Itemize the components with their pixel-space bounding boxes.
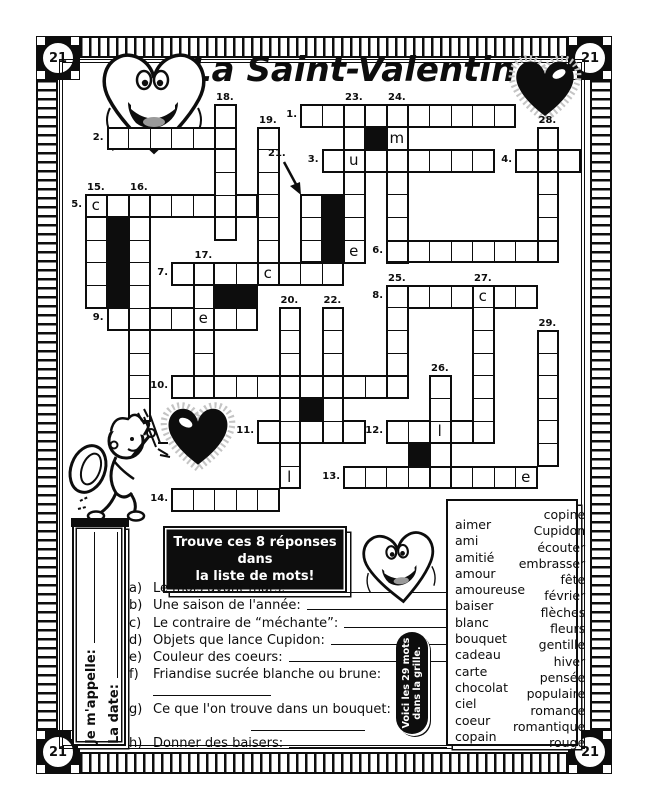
grid-cell[interactable] — [107, 127, 130, 151]
grid-black-cell — [107, 217, 130, 241]
grid-cell[interactable] — [408, 466, 431, 490]
grid-cell[interactable] — [279, 420, 302, 444]
grid-cell[interactable] — [214, 217, 237, 241]
clue-text: Couleur des coeurs: — [153, 650, 285, 665]
grid-cell[interactable] — [214, 149, 237, 173]
grid-number: 23. — [345, 92, 367, 103]
name-input-line[interactable] — [94, 532, 95, 643]
grid-cell[interactable] — [300, 217, 323, 241]
grid-number: 16. — [130, 182, 152, 193]
grid-cell[interactable] — [128, 307, 151, 331]
answer-line[interactable] — [344, 627, 447, 628]
grid-cell[interactable] — [343, 104, 366, 128]
grid-cell[interactable] — [558, 149, 581, 173]
grid-cell[interactable] — [365, 149, 388, 173]
grid-cell[interactable] — [128, 285, 151, 309]
grid-cell[interactable] — [236, 375, 259, 399]
clue-text: Le mois avant mars: — [153, 581, 288, 596]
worksheet-page: 21 21 21 21 La Saint-Valentin 1.2.3.4.5.… — [0, 0, 648, 810]
grid-cell[interactable] — [193, 285, 216, 309]
name-label: Je m'appelle: — [84, 649, 99, 744]
grid-cell[interactable] — [107, 194, 130, 218]
lace-heart-icon — [506, 52, 584, 124]
grid-cell[interactable] — [214, 127, 237, 151]
word-list-item: bouquet — [455, 631, 513, 647]
grid-cell[interactable] — [300, 240, 323, 264]
grid-cell[interactable] — [322, 307, 345, 331]
grid-number: 2. — [79, 132, 104, 143]
grid-cell[interactable] — [214, 262, 237, 286]
grid-cell[interactable] — [515, 240, 538, 264]
grid-cell[interactable] — [279, 398, 302, 422]
badge-line1: Voici les 29 mots — [401, 638, 412, 729]
grid-cell[interactable] — [472, 375, 495, 399]
grid-cell[interactable] — [128, 330, 151, 354]
answer-line[interactable] — [251, 729, 365, 731]
grid-number: 17. — [195, 250, 217, 261]
grid-cell[interactable] — [257, 420, 280, 444]
grid-cell[interactable] — [429, 149, 452, 173]
grid-cell[interactable] — [85, 240, 108, 264]
grid-cell[interactable] — [537, 127, 560, 151]
grid-cell[interactable] — [128, 353, 151, 377]
grid-letter: m — [386, 127, 408, 150]
grid-cell[interactable] — [322, 104, 345, 128]
grid-cell[interactable] — [322, 375, 345, 399]
grid-number: 27. — [474, 273, 496, 284]
clue-text: Le contraire de “méchante”: — [153, 616, 340, 631]
grid-cell[interactable] — [386, 285, 409, 309]
grid-cell[interactable] — [322, 420, 345, 444]
grid-cell[interactable] — [537, 420, 560, 444]
grid-black-cell — [365, 127, 388, 151]
grid-cell[interactable] — [171, 262, 194, 286]
word-list-item: baiser — [455, 598, 513, 614]
grid-cell[interactable] — [451, 149, 474, 173]
grid-cell[interactable] — [214, 172, 237, 196]
grid-cell[interactable] — [537, 217, 560, 241]
word-list-box: aimeramiamitiéamouramoureusebaiserblancb… — [446, 499, 578, 746]
grid-cell[interactable] — [408, 149, 431, 173]
grid-cell[interactable] — [429, 466, 452, 490]
grid-cell[interactable] — [386, 375, 409, 399]
grid-cell[interactable] — [537, 375, 560, 399]
grid-cell[interactable] — [451, 285, 474, 309]
grid-cell[interactable] — [128, 375, 151, 399]
grid-cell[interactable] — [537, 353, 560, 377]
word-list-item: blanc — [455, 615, 513, 631]
grid-cell[interactable] — [429, 240, 452, 264]
grid-number: 26. — [431, 363, 453, 374]
date-label: La date: — [107, 684, 122, 744]
grid-cell[interactable] — [107, 307, 130, 331]
grid-cell[interactable] — [386, 194, 409, 218]
grid-cell[interactable] — [343, 375, 366, 399]
grid-cell[interactable] — [451, 420, 474, 444]
grid-cell[interactable] — [472, 104, 495, 128]
grid-number: 21. — [268, 148, 286, 159]
grid-cell[interactable] — [257, 217, 280, 241]
grid-cell[interactable] — [515, 149, 538, 173]
word-list-item: ami — [455, 533, 513, 549]
grid-cell[interactable] — [257, 240, 280, 264]
word-list-item: gentille — [513, 637, 585, 653]
clue-letter: h) — [129, 736, 153, 751]
word-list-item: romance — [513, 703, 585, 719]
grid-number: 28. — [539, 115, 561, 126]
grid-cell[interactable] — [257, 375, 280, 399]
grid-cell[interactable] — [214, 307, 237, 331]
grid-cell[interactable] — [343, 172, 366, 196]
grid-cell[interactable] — [386, 240, 409, 264]
grid-black-cell — [214, 285, 237, 309]
word-list-item: flèches — [513, 605, 585, 621]
grid-cell[interactable] — [236, 307, 259, 331]
grid-cell[interactable] — [214, 104, 237, 128]
grid-cell[interactable] — [128, 217, 151, 241]
grid-cell[interactable] — [494, 285, 517, 309]
grid-number: 18. — [216, 92, 238, 103]
clue-letter: e) — [129, 650, 153, 665]
grid-number: 20. — [281, 295, 303, 306]
grid-black-cell — [107, 240, 130, 264]
grid-cell[interactable] — [343, 194, 366, 218]
answer-line[interactable] — [331, 644, 447, 645]
grid-cell[interactable] — [257, 488, 280, 512]
grid-cell[interactable] — [472, 307, 495, 331]
clue-text: Objets que lance Cupidon: — [153, 633, 327, 648]
grid-cell[interactable] — [214, 194, 237, 218]
grid-cell[interactable] — [300, 104, 323, 128]
word-list-item: février — [513, 588, 585, 604]
clue-letter: g) — [129, 702, 153, 717]
grid-cell[interactable] — [343, 466, 366, 490]
clue-letter: c) — [129, 616, 153, 631]
word-list-item: pensée — [513, 670, 585, 686]
word-list-left-column: aimeramiamitiéamouramoureusebaiserblancb… — [455, 505, 513, 740]
word-list-item: romantique — [513, 719, 585, 735]
grid-cell[interactable] — [322, 398, 345, 422]
smiley-heart-icon — [352, 524, 448, 615]
grid-cell[interactable] — [322, 353, 345, 377]
grid-cell[interactable] — [128, 262, 151, 286]
page-title: La Saint-Valentin — [190, 50, 470, 90]
grid-cell[interactable] — [343, 127, 366, 151]
grid-cell[interactable] — [408, 285, 431, 309]
grid-black-cell — [107, 285, 130, 309]
word-list-right-column: copineCupidonécouterembrasserfêtefévrier… — [513, 505, 585, 740]
grid-cell[interactable] — [472, 240, 495, 264]
grid-cell[interactable] — [193, 488, 216, 512]
grid-letter: l — [429, 420, 451, 443]
grid-cell[interactable] — [365, 104, 388, 128]
grid-cell[interactable] — [451, 466, 474, 490]
clue-letter: d) — [129, 633, 153, 648]
grid-cell[interactable] — [429, 104, 452, 128]
word-count-badge: Voici les 29 mots dans la grille. — [396, 632, 428, 734]
grid-cell[interactable] — [171, 127, 194, 151]
grid-cell[interactable] — [171, 194, 194, 218]
grid-cell[interactable] — [472, 420, 495, 444]
word-list-item: amoureuse — [455, 582, 513, 598]
grid-cell[interactable] — [537, 149, 560, 173]
grid-cell[interactable] — [408, 420, 431, 444]
cupid-icon — [58, 405, 188, 527]
grid-cell[interactable] — [537, 240, 560, 264]
grid-cell[interactable] — [451, 240, 474, 264]
grid-cell[interactable] — [85, 285, 108, 309]
grid-cell[interactable] — [322, 262, 345, 286]
grid-cell[interactable] — [193, 262, 216, 286]
grid-black-cell — [322, 240, 345, 264]
grid-cell[interactable] — [279, 307, 302, 331]
grid-cell[interactable] — [171, 375, 194, 399]
grid-cell[interactable] — [386, 420, 409, 444]
grid-cell[interactable] — [171, 307, 194, 331]
grid-cell[interactable] — [236, 488, 259, 512]
grid-cell[interactable] — [85, 262, 108, 286]
grid-cell[interactable] — [386, 307, 409, 331]
grid-cell[interactable] — [128, 240, 151, 264]
grid-cell[interactable] — [494, 240, 517, 264]
grid-cell[interactable] — [214, 375, 237, 399]
grid-letter: c — [85, 194, 107, 217]
word-list-item: carte — [455, 664, 513, 680]
grid-cell[interactable] — [236, 194, 259, 218]
grid-number: 13. — [315, 471, 340, 482]
word-list-item: coeur — [455, 713, 513, 729]
grid-cell[interactable] — [279, 443, 302, 467]
grid-number: 22. — [324, 295, 346, 306]
word-list-item: Cupidon — [513, 523, 585, 539]
grid-letter: e — [515, 466, 537, 489]
grid-cell[interactable] — [537, 398, 560, 422]
grid-cell[interactable] — [429, 285, 452, 309]
word-list-item: rouge — [513, 735, 585, 751]
grid-cell[interactable] — [214, 488, 237, 512]
grid-cell[interactable] — [279, 262, 302, 286]
grid-cell[interactable] — [365, 466, 388, 490]
badge-line2: dans la grille. — [412, 646, 423, 719]
grid-black-cell — [236, 285, 259, 309]
grid-cell[interactable] — [472, 353, 495, 377]
grid-cell[interactable] — [322, 330, 345, 354]
word-list-item: chocolat — [455, 680, 513, 696]
grid-cell[interactable] — [494, 466, 517, 490]
grid-cell[interactable] — [85, 217, 108, 241]
grid-cell[interactable] — [300, 375, 323, 399]
name-date-box: Je m'appelle: La date: — [72, 524, 126, 746]
word-list-item: copine — [513, 507, 585, 523]
border-strip-bottom — [78, 752, 570, 774]
grid-cell[interactable] — [472, 330, 495, 354]
grid-black-cell — [300, 398, 323, 422]
grid-cell[interactable] — [537, 172, 560, 196]
grid-cell[interactable] — [429, 375, 452, 399]
grid-number: 24. — [388, 92, 410, 103]
word-list-item: hiver — [513, 654, 585, 670]
grid-number: 4. — [487, 154, 512, 165]
grid-cell[interactable] — [494, 104, 517, 128]
grid-number: 19. — [259, 115, 281, 126]
instructions-line1: Trouve ces 8 réponses dans — [169, 534, 341, 568]
word-list-item: aimer — [455, 517, 513, 533]
grid-cell[interactable] — [386, 104, 409, 128]
grid-cell[interactable] — [279, 330, 302, 354]
word-list-item: copain — [455, 729, 513, 745]
grid-cell[interactable] — [236, 262, 259, 286]
grid-cell[interactable] — [386, 172, 409, 196]
grid-number: 25. — [388, 273, 410, 284]
clue-text: Friandise sucrée blanche ou brune: — [153, 667, 383, 682]
word-list-item: écouter — [513, 540, 585, 556]
grid-cell[interactable] — [429, 443, 452, 467]
grid-cell[interactable] — [322, 149, 345, 173]
word-list-item: populaire — [513, 686, 585, 702]
word-list-item: fleurs — [513, 621, 585, 637]
word-list-item: cadeau — [455, 647, 513, 663]
grid-cell[interactable] — [300, 262, 323, 286]
grid-cell[interactable] — [193, 194, 216, 218]
grid-cell[interactable] — [537, 443, 560, 467]
grid-cell[interactable] — [128, 194, 151, 218]
border-strip-left — [36, 78, 58, 732]
grid-letter: e — [193, 307, 215, 330]
grid-cell[interactable] — [193, 375, 216, 399]
grid-cell[interactable] — [386, 353, 409, 377]
grid-cell[interactable] — [150, 127, 173, 151]
grid-cell[interactable] — [193, 353, 216, 377]
grid-cell[interactable] — [343, 217, 366, 241]
grid-cell[interactable] — [150, 307, 173, 331]
clue-item: h)Donner des baisers: — [129, 734, 451, 751]
clue-text: Donner des baisers: — [153, 736, 285, 751]
grid-number: 29. — [539, 318, 561, 329]
grid-cell[interactable] — [386, 466, 409, 490]
grid-number: 15. — [87, 182, 109, 193]
border-strip-right — [590, 78, 612, 732]
answer-line[interactable] — [289, 747, 447, 748]
grid-cell[interactable] — [150, 194, 173, 218]
clue-text: Ce que l'on trouve dans un bouquet: — [153, 702, 393, 717]
grid-cell[interactable] — [279, 375, 302, 399]
grid-letter: u — [343, 149, 365, 172]
grid-cell[interactable] — [193, 127, 216, 151]
grid-cell[interactable] — [257, 127, 280, 151]
grid-cell[interactable] — [300, 420, 323, 444]
grid-number: 12. — [358, 425, 383, 436]
grid-black-cell — [408, 443, 431, 467]
grid-number: 5. — [57, 199, 82, 210]
date-input-line[interactable] — [117, 532, 118, 678]
grid-cell[interactable] — [472, 466, 495, 490]
grid-cell[interactable] — [408, 104, 431, 128]
arrow-annotation-21: 21. — [268, 148, 312, 198]
grid-number: 8. — [358, 290, 383, 301]
grid-cell[interactable] — [472, 398, 495, 422]
grid-black-cell — [107, 262, 130, 286]
grid-cell[interactable] — [537, 194, 560, 218]
grid-cell[interactable] — [386, 330, 409, 354]
grid-number: 9. — [79, 312, 104, 323]
clue-item: c)Le contraire de “méchante”: — [129, 613, 451, 630]
clue-text: Une saison de l'année: — [153, 598, 303, 613]
grid-letter: l — [279, 466, 301, 489]
grid-cell[interactable] — [128, 127, 151, 151]
grid-cell[interactable] — [429, 398, 452, 422]
word-list-item: embrasser — [513, 556, 585, 572]
grid-letter: e — [343, 240, 365, 263]
grid-cell[interactable] — [279, 353, 302, 377]
grid-letter: c — [257, 262, 279, 285]
grid-letter: c — [472, 285, 494, 308]
word-list-item: fête — [513, 572, 585, 588]
grid-cell[interactable] — [386, 149, 409, 173]
clue-letter: b) — [129, 598, 153, 613]
grid-cell[interactable] — [386, 217, 409, 241]
grid-black-cell — [322, 217, 345, 241]
grid-cell[interactable] — [365, 375, 388, 399]
grid-cell[interactable] — [408, 240, 431, 264]
grid-cell[interactable] — [537, 330, 560, 354]
grid-cell[interactable] — [451, 104, 474, 128]
grid-cell[interactable] — [193, 330, 216, 354]
clue-letter: a) — [129, 581, 153, 596]
word-list-item: amitié — [455, 550, 513, 566]
answer-line[interactable] — [153, 694, 271, 696]
grid-cell[interactable] — [515, 285, 538, 309]
word-list-item: amour — [455, 566, 513, 582]
clue-letter: f) — [129, 667, 153, 682]
word-list-item: ciel — [455, 696, 513, 712]
grid-black-cell — [322, 194, 345, 218]
